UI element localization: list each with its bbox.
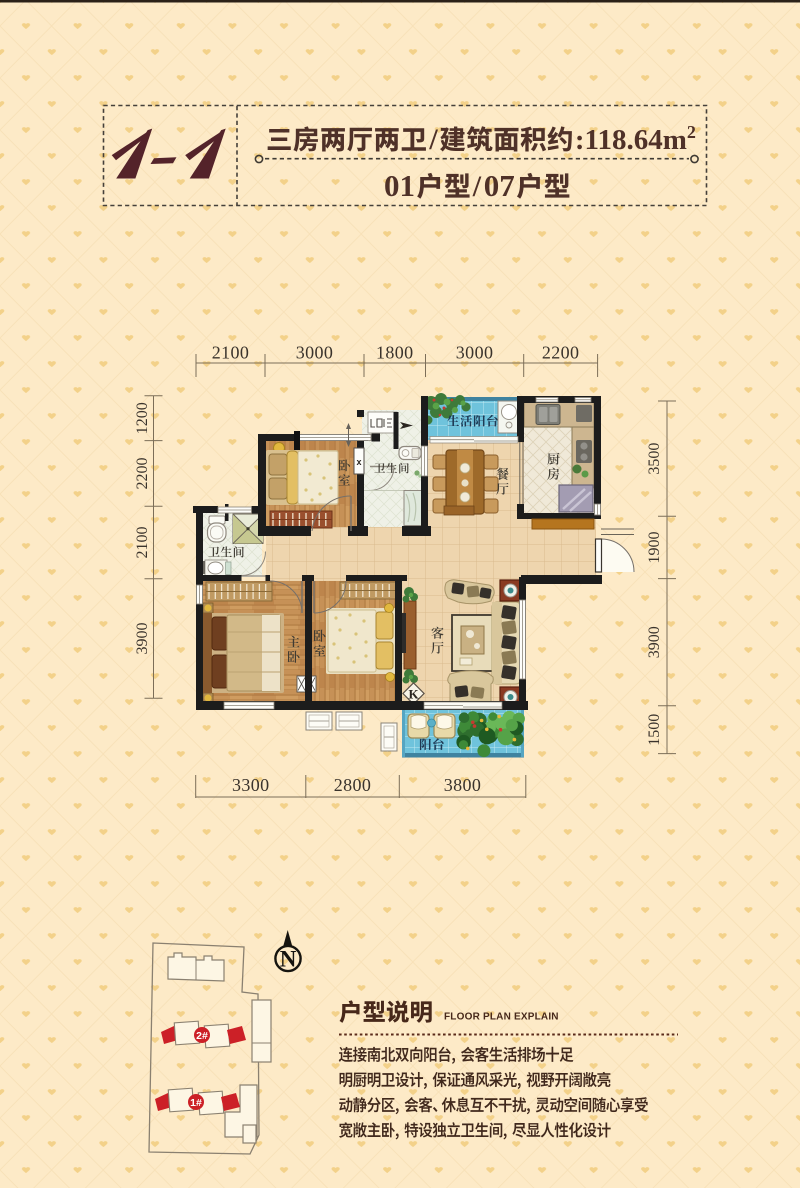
svg-text:2#: 2#: [196, 1030, 208, 1042]
svg-text:3000: 3000: [296, 343, 334, 363]
svg-text:1800: 1800: [376, 343, 414, 363]
svg-text:3800: 3800: [444, 775, 482, 795]
svg-text:/: /: [428, 123, 438, 156]
svg-text:FLOOR PLAN EXPLAIN: FLOOR PLAN EXPLAIN: [444, 1012, 559, 1023]
svg-text:2200: 2200: [134, 457, 151, 489]
svg-text:3300: 3300: [232, 775, 270, 795]
svg-text:3000: 3000: [456, 343, 494, 363]
svg-text:1500: 1500: [646, 714, 663, 746]
svg-text:2100: 2100: [212, 343, 250, 363]
svg-text:N: N: [280, 947, 297, 972]
svg-text:01: 01: [384, 168, 415, 203]
svg-text:3900: 3900: [646, 626, 663, 658]
svg-text:K: K: [408, 687, 419, 702]
svg-text:2200: 2200: [542, 343, 580, 363]
svg-text::118.64m: :118.64m: [575, 124, 687, 156]
svg-text:2800: 2800: [334, 775, 372, 795]
svg-text:3500: 3500: [646, 443, 663, 475]
svg-text:3900: 3900: [134, 622, 151, 654]
svg-text:/: /: [472, 170, 482, 203]
svg-text:2: 2: [687, 122, 696, 142]
svg-text:2100: 2100: [134, 527, 151, 559]
svg-text:1900: 1900: [646, 531, 663, 563]
svg-text:1200: 1200: [134, 402, 151, 434]
svg-text:07: 07: [484, 168, 515, 203]
svg-text:x: x: [356, 457, 361, 467]
svg-text:1#: 1#: [190, 1097, 202, 1109]
